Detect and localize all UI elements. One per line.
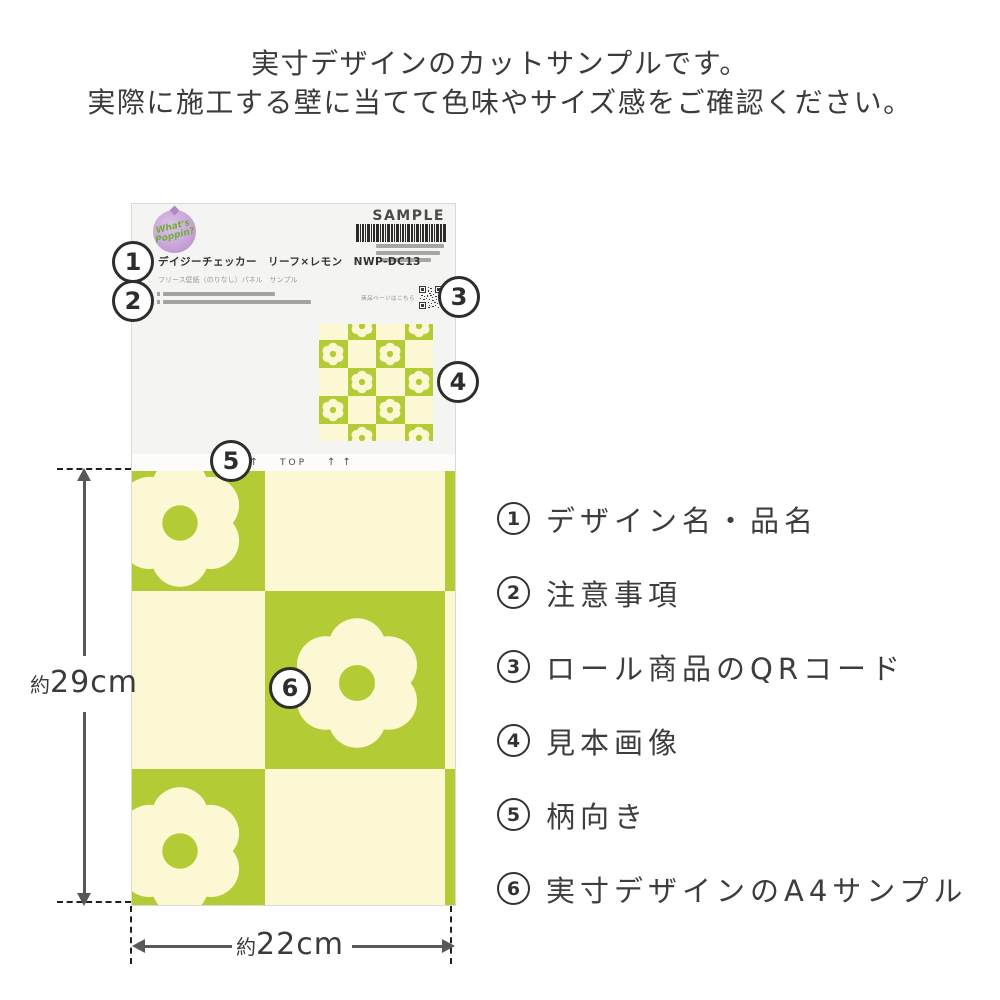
instruction-line-1: 実寸デザインのカットサンプルです。	[0, 44, 1000, 83]
callout-circle-5: 5	[210, 440, 252, 482]
legend-list: 1 デザイン名・品名 2 注意事項 3 ロール商品のQRコード 4 見本画像 5…	[497, 502, 967, 946]
height-arrow-line	[83, 712, 86, 896]
legend-label: 実寸デザインのA4サンプル	[546, 868, 967, 910]
legend-label: 柄向き	[546, 794, 648, 836]
orientation-strip: ↑ ↑ TOP ↑ ↑	[132, 454, 455, 471]
sample-label: SAMPLE	[372, 208, 445, 224]
daisy-flower	[291, 617, 423, 749]
width-dimension-label: 約22cm	[224, 927, 356, 962]
width-arrow-line	[137, 945, 232, 948]
legend-item-a4-sample: 6 実寸デザインのA4サンプル	[497, 872, 967, 905]
legend-item-design-name: 1 デザイン名・品名	[497, 502, 967, 535]
instruction-text: 実寸デザインのカットサンプルです。 実際に施工する壁に当てて色味やサイズ感をご確…	[0, 44, 1000, 122]
callout-circle-6: 6	[269, 667, 311, 709]
legend-num-6: 6	[497, 872, 530, 905]
preview-swatch	[319, 324, 433, 441]
legend-label: 見本画像	[546, 720, 682, 762]
product-infographic: 実寸デザインのカットサンプルです。 実際に施工する壁に当てて色味やサイズ感をご確…	[0, 0, 1000, 1000]
legend-num-1: 1	[497, 502, 530, 535]
dimension-dashed-line	[57, 901, 131, 903]
note-bullet	[157, 292, 160, 296]
callout-circle-4: 4	[437, 361, 479, 403]
legend-label: デザイン名・品名	[546, 498, 818, 540]
legend-label: ロール商品のQRコード	[546, 646, 905, 688]
arrowhead-down	[77, 893, 91, 906]
up-arrows-icon: ↑ ↑	[327, 457, 353, 468]
whats-poppin-logo: What's Poppin?	[153, 210, 196, 253]
width-arrow-line	[352, 945, 447, 948]
arrowhead-right	[442, 939, 455, 953]
logo-stem	[170, 206, 180, 216]
legend-num-3: 3	[497, 650, 530, 683]
callout-circle-2: 2	[112, 280, 154, 322]
legend-num-5: 5	[497, 798, 530, 831]
callout-circle-1: 1	[112, 241, 154, 283]
height-dimension-label: 約29cm	[18, 665, 150, 700]
legend-num-2: 2	[497, 576, 530, 609]
note-bullet	[157, 300, 160, 304]
product-subtitle: フリース壁紙（のりなし）パネル サンプル	[158, 275, 297, 285]
width-approx-prefix: 約	[236, 935, 256, 959]
qr-caption: 商品ページはこちら	[361, 294, 415, 302]
legend-label: 注意事項	[546, 572, 682, 614]
top-label: TOP	[280, 458, 307, 468]
daisy-flower	[132, 471, 245, 588]
dimension-dashed-line	[57, 468, 131, 470]
legend-item-qr-code: 3 ロール商品のQRコード	[497, 650, 967, 683]
legend-item-notes: 2 注意事項	[497, 576, 967, 609]
legend-item-preview-image: 4 見本画像	[497, 724, 967, 757]
sample-card: What's Poppin? SAMPLE デイジーチェッカー	[131, 203, 456, 906]
width-value: 22cm	[256, 927, 344, 962]
legend-item-pattern-direction: 5 柄向き	[497, 798, 967, 831]
note-text-line	[163, 292, 275, 296]
logo-text: What's Poppin?	[153, 218, 197, 245]
legend-num-4: 4	[497, 724, 530, 757]
daisy-flower	[132, 786, 245, 905]
callout-circle-3: 3	[438, 276, 480, 318]
height-arrow-line	[83, 478, 86, 656]
product-name: デイジーチェッカー リーフ×レモン NWP-DC13	[158, 254, 421, 269]
barcode	[356, 224, 446, 242]
instruction-line-2: 実際に施工する壁に当てて色味やサイズ感をご確認ください。	[0, 83, 1000, 122]
preview-pattern	[319, 324, 433, 441]
dimension-dashed-line	[130, 906, 132, 964]
qr-block: 商品ページはこちら	[361, 286, 442, 309]
height-value: 29cm	[50, 665, 138, 700]
height-approx-prefix: 約	[30, 673, 50, 697]
dimension-dashed-line	[450, 906, 452, 964]
note-text-line	[163, 300, 311, 304]
barcode-text-line	[376, 244, 444, 248]
